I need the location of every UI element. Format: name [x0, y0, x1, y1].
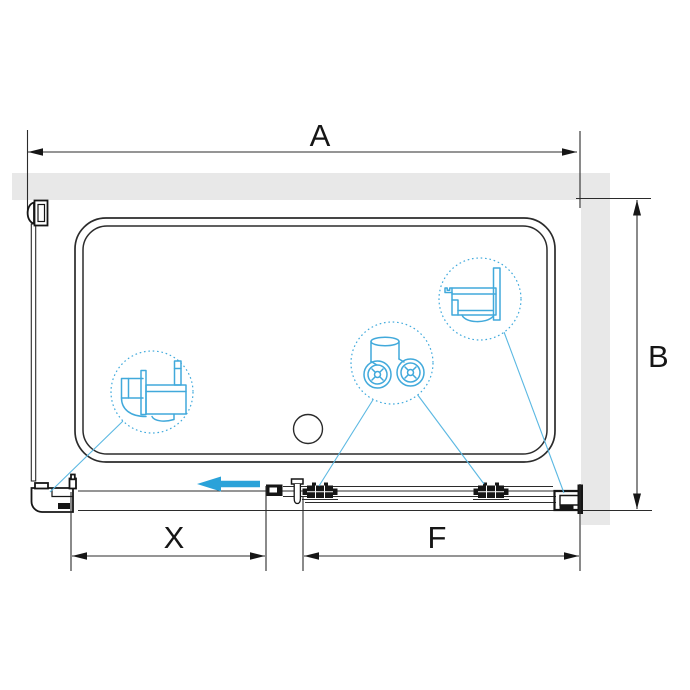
left-side-panel	[28, 201, 48, 482]
roller-stud	[312, 483, 316, 486]
dim-label-a: A	[310, 118, 331, 153]
bracket-ear	[28, 203, 34, 224]
roller-stud	[324, 483, 328, 486]
drawing-canvas: A B	[0, 0, 690, 690]
dim-label-b: B	[648, 339, 669, 374]
arrowhead-x-right	[250, 552, 265, 560]
handle-cap	[292, 479, 304, 484]
end-cap-foot	[560, 506, 574, 511]
arrowhead-x-left	[72, 552, 87, 560]
arrowhead-a-left	[28, 148, 43, 156]
slide-direction-arrow-icon	[197, 477, 260, 492]
top-wall	[12, 173, 610, 200]
arrowhead-b-bottom	[633, 494, 641, 510]
roller-stud	[495, 483, 499, 486]
door-stopper	[266, 485, 283, 497]
roller-tab	[474, 489, 479, 496]
glass-shoe	[35, 483, 48, 489]
handle-body	[294, 484, 300, 504]
arrowhead-a-right	[562, 148, 577, 156]
roller-right	[473, 483, 509, 500]
right-end-profile	[555, 485, 584, 515]
arrowhead-b-top	[633, 200, 641, 216]
dimension-B: B	[553, 199, 669, 511]
right-wall	[581, 200, 610, 525]
roller-tab	[333, 489, 338, 496]
drain	[294, 415, 323, 444]
dim-label-f: F	[428, 520, 447, 555]
roller-tab	[504, 489, 509, 496]
profile-foot	[58, 503, 70, 509]
roller-tab	[303, 489, 308, 496]
side-panel-glass	[31, 224, 35, 481]
callout-roller-detail	[351, 322, 433, 404]
side-panel-top-bracket	[28, 201, 48, 226]
dimension-X: X	[71, 486, 266, 571]
arrowhead-f-left	[304, 552, 319, 560]
bottom-left-profile	[32, 475, 77, 513]
end-cap-inner	[560, 496, 578, 506]
dim-label-x: X	[164, 520, 185, 555]
pivot-pin-cap	[71, 475, 75, 480]
callout-wall-profile-detail	[111, 351, 193, 433]
shower-enclosure-diagram: A B	[0, 0, 690, 690]
callout-corner-profile-detail	[439, 258, 521, 340]
stopper-slot	[270, 488, 278, 493]
arrowhead-f-right	[564, 552, 579, 560]
